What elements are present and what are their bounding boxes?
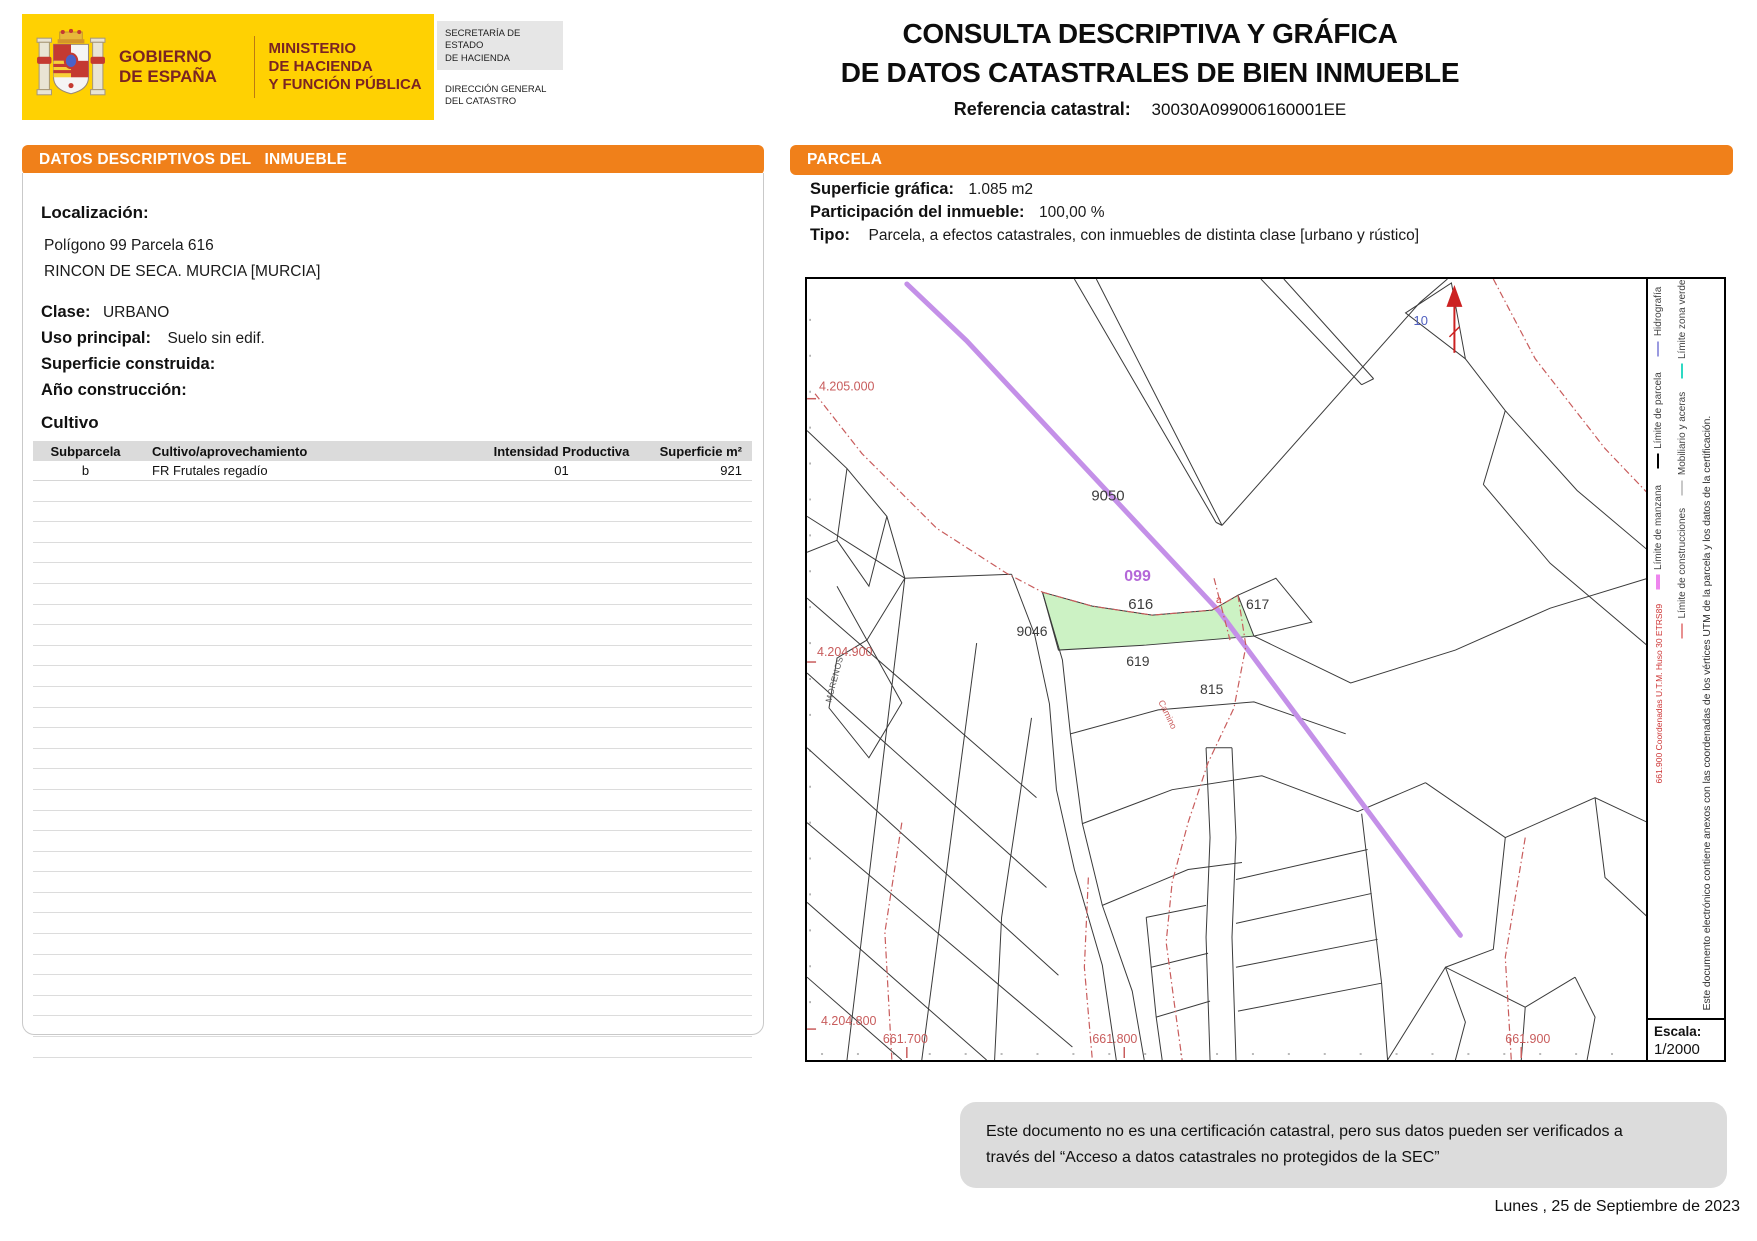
scale-box: Escala: 1/2000 — [1646, 1018, 1726, 1062]
construcciones-swatch-icon — [1681, 623, 1683, 638]
participacion-value: 100,00 % — [1039, 204, 1105, 221]
col-subparcela: Subparcela — [33, 444, 138, 459]
utm-note: 661.900 Coordenadas U.T.M. Huso 30 ETRS8… — [1654, 603, 1664, 783]
table-row — [33, 708, 752, 729]
superficie-grafica-label: Superficie gráfica: — [810, 180, 954, 198]
table-row — [33, 728, 752, 749]
table-row — [33, 996, 752, 1017]
tipo-label: Tipo: — [810, 226, 850, 244]
parcel-label: 617 — [1246, 596, 1270, 612]
escala-label: Escala: — [1654, 1023, 1718, 1041]
subparcel-a-label: a — [1216, 595, 1222, 606]
parcel-boundaries — [807, 279, 1648, 1060]
disclaimer-line-2: través del “Acceso a datos catastrales n… — [986, 1145, 1701, 1171]
escala-value: 1/2000 — [1654, 1041, 1718, 1059]
cell-superficie: 921 — [655, 463, 752, 478]
cadastral-map-svg: 9050 099 616 a 617 9046 619 815 10 MOREN… — [807, 279, 1648, 1060]
table-row — [33, 790, 752, 811]
hidrografia-swatch-icon — [1657, 341, 1659, 356]
superficie-grafica-value: 1.085 m2 — [968, 181, 1033, 198]
disclaimer-line-1: Este documento no es una certificación c… — [986, 1119, 1701, 1145]
parcel-label: 619 — [1126, 653, 1150, 669]
table-row — [33, 605, 752, 626]
legend-entry: Límite de parcela — [1653, 372, 1664, 469]
localizacion-line1: Polígono 99 Parcela 616 — [44, 237, 214, 255]
uso-row: Uso principal: Suelo sin edif. — [41, 329, 265, 348]
utm-coordinate: 661.700 — [883, 1032, 928, 1046]
poligono-label: 099 — [1124, 568, 1151, 585]
datos-descriptivos-panel: Localización: Polígono 99 Parcela 616 RI… — [22, 173, 764, 1035]
legend-entry: Límite de manzana — [1653, 484, 1664, 589]
clase-row: Clase: URBANO — [41, 303, 169, 322]
table-row — [33, 769, 752, 790]
map-labels: 9050 099 616 a 617 9046 619 815 10 MOREN… — [817, 313, 1550, 1046]
uso-label: Uso principal: — [41, 329, 151, 347]
parcel-label: 9050 — [1091, 487, 1124, 504]
parcel-label: 616 — [1128, 596, 1153, 613]
legend-entry: Límite de construcciones — [1677, 507, 1688, 638]
street-label: MORENOS — [823, 655, 845, 703]
tipo-value: Parcela, a efectos catastrales, con inmu… — [868, 227, 1419, 244]
superficie-construida-label: Superficie construida: — [41, 355, 215, 374]
table-row — [33, 934, 752, 955]
cell-subparcela: b — [33, 463, 138, 478]
camino-label: Camino — [1156, 698, 1179, 730]
col-intensidad: Intensidad Productiva — [468, 444, 655, 459]
table-row — [33, 481, 752, 502]
left-panel-title: DATOS DESCRIPTIVOS DEL — [39, 151, 251, 168]
table-row — [33, 852, 752, 873]
legend-line-1: 661.900 Coordenadas U.T.M. Huso 30 ETRS8… — [1653, 279, 1664, 1018]
table-row — [33, 625, 752, 646]
left-panel-header: DATOS DESCRIPTIVOS DEL INMUEBLE — [22, 145, 764, 175]
localizacion-label: Localización: — [41, 203, 149, 223]
table-row: b FR Frutales regadío 01 921 — [33, 461, 752, 481]
table-row — [33, 831, 752, 852]
cadastral-document: GOBIERNO DE ESPAÑA MINISTERIO DE HACIEND… — [0, 0, 1757, 1241]
table-row — [33, 687, 752, 708]
legend-entry: Hidrografía — [1653, 286, 1664, 355]
parcela-title: PARCELA — [807, 151, 882, 168]
table-row — [33, 975, 752, 996]
utm-coordinate: 4.204.900 — [817, 645, 872, 659]
title-line-1: CONSULTA DESCRIPTIVA Y GRÁFICA — [840, 14, 1460, 53]
utm-coordinate: 4.204.800 — [821, 1014, 876, 1028]
col-cultivo: Cultivo/aprovechamiento — [138, 444, 468, 459]
cultivo-empty-rows — [33, 481, 752, 1058]
logo-divider — [254, 36, 255, 98]
hydrography-line — [907, 284, 1461, 935]
legend-entry: Límite zona verde — [1677, 279, 1688, 379]
title-line-2: DE DATOS CATASTRALES DE BIEN INMUEBLE — [840, 53, 1460, 92]
construction-boundaries — [815, 279, 1648, 1060]
cell-cultivo: FR Frutales regadío — [138, 463, 468, 478]
left-panel-title-bold: INMUEBLE — [265, 151, 348, 168]
gobierno-title: GOBIERNO DE ESPAÑA — [119, 47, 244, 86]
superficie-grafica-row: Superficie gráfica: 1.085 m2 — [810, 180, 1740, 199]
uso-value: Suelo sin edif. — [167, 330, 264, 347]
north-arrow-icon — [1446, 285, 1462, 353]
zona-verde-swatch-icon — [1681, 364, 1683, 379]
tipo-row: Tipo: Parcela, a efectos catastrales, co… — [810, 226, 1740, 245]
cultivo-heading: Cultivo — [41, 413, 99, 433]
referencia-value: 30030A099006160001EE — [1152, 100, 1347, 119]
clase-value: URBANO — [103, 304, 169, 321]
utm-coordinate: 4.205.000 — [819, 380, 874, 394]
table-row — [33, 872, 752, 893]
table-row — [33, 893, 752, 914]
document-date: Lunes , 25 de Septiembre de 2023 — [1494, 1198, 1740, 1216]
ministerio-title: MINISTERIO DE HACIENDA Y FUNCIÓN PÚBLICA — [269, 40, 434, 95]
col-superficie: Superficie m² — [655, 444, 752, 459]
cultivo-table: Subparcela Cultivo/aprovechamiento Inten… — [33, 441, 752, 1058]
legend-line-2: Límite de construcciones Mobiliario y ac… — [1677, 279, 1688, 1018]
cell-intensidad: 01 — [468, 463, 655, 478]
parcel-label: 815 — [1200, 681, 1224, 697]
parcel-label: 10 — [1414, 313, 1428, 328]
ano-construccion-label: Año construcción: — [41, 381, 187, 400]
map-legend: 661.900 Coordenadas U.T.M. Huso 30 ETRS8… — [1646, 277, 1726, 1020]
participacion-row: Participación del inmueble: 100,00 % — [810, 203, 1740, 222]
legend-rotated-content: 661.900 Coordenadas U.T.M. Huso 30 ETRS8… — [1649, 279, 1723, 1018]
utm-coordinate: 661.800 — [1092, 1032, 1137, 1046]
document-title: CONSULTA DESCRIPTIVA Y GRÁFICA DE DATOS … — [840, 14, 1460, 120]
right-panel-header: PARCELA — [790, 145, 1733, 175]
direccion-catastro-label: DIRECCIÓN GENERAL DEL CATASTRO — [437, 84, 577, 109]
cadastral-map: 9050 099 616 a 617 9046 619 815 10 MOREN… — [805, 277, 1650, 1062]
table-row — [33, 502, 752, 523]
table-row — [33, 1037, 752, 1058]
coordinate-ticks — [807, 399, 1521, 1058]
legend-entry: Mobiliario y aceras — [1677, 391, 1688, 494]
disclaimer-box: Este documento no es una certificación c… — [960, 1102, 1727, 1188]
aceras-swatch-icon — [1681, 480, 1683, 495]
table-row — [33, 543, 752, 564]
manzana-swatch-icon — [1656, 574, 1660, 589]
table-row — [33, 955, 752, 976]
table-row — [33, 584, 752, 605]
parcela-fields: Superficie gráfica: 1.085 m2 Participaci… — [810, 180, 1740, 249]
government-logo: GOBIERNO DE ESPAÑA MINISTERIO DE HACIEND… — [22, 14, 434, 120]
secretaria-label: SECRETARÍA DE ESTADO DE HACIENDA — [437, 21, 563, 70]
table-row — [33, 563, 752, 584]
localizacion-line2: RINCON DE SECA. MURCIA [MURCIA] — [44, 263, 320, 281]
parcela-swatch-icon — [1657, 453, 1659, 468]
table-row — [33, 1016, 752, 1037]
table-row — [33, 522, 752, 543]
table-row — [33, 666, 752, 687]
table-row — [33, 913, 752, 934]
table-header-row: Subparcela Cultivo/aprovechamiento Inten… — [33, 441, 752, 461]
referencia-label: Referencia catastral: — [954, 99, 1131, 119]
parcel-label: 9046 — [1017, 623, 1048, 639]
table-row — [33, 811, 752, 832]
table-row — [33, 749, 752, 770]
table-row — [33, 646, 752, 667]
spain-coat-of-arms-icon — [35, 25, 107, 109]
participacion-label: Participación del inmueble: — [810, 203, 1025, 221]
referencia-catastral: Referencia catastral: 30030A099006160001… — [840, 99, 1460, 120]
clase-label: Clase: — [41, 303, 91, 321]
utm-coordinate: 661.900 — [1505, 1032, 1550, 1046]
legend-cert-note: Este documento electrónico contiene anex… — [1701, 279, 1713, 1018]
